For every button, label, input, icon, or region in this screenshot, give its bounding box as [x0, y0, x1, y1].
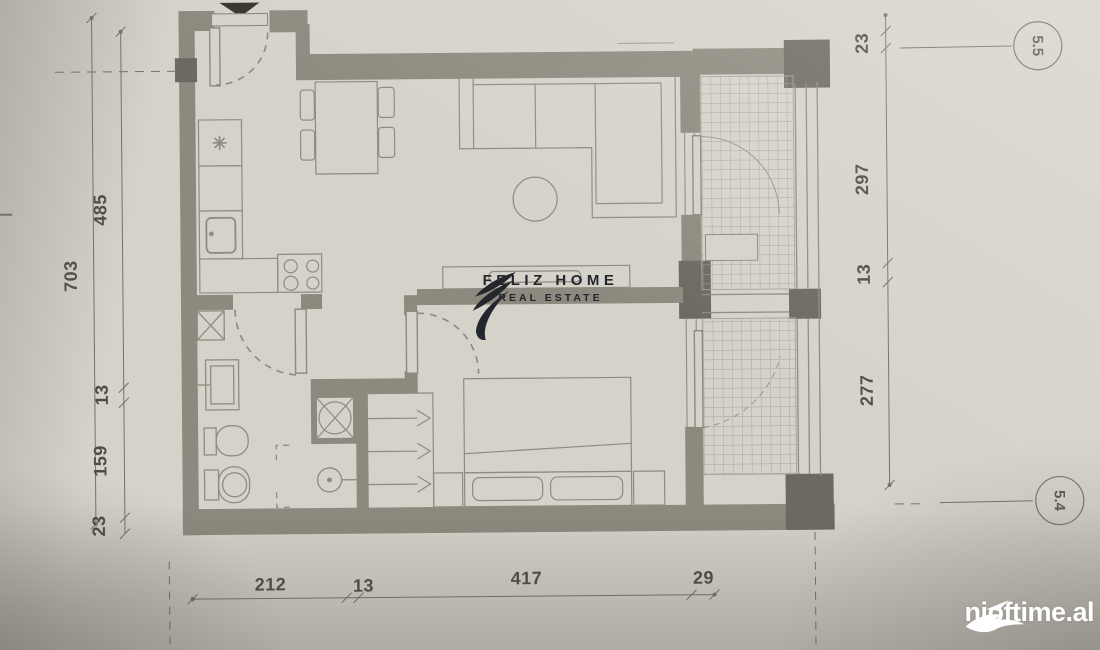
sink-tap-icon: [210, 232, 214, 236]
coffee-table: [513, 177, 557, 221]
chair: [378, 87, 394, 117]
balcony-unit: [705, 234, 757, 260]
pillow: [551, 476, 623, 500]
dimension-lines: [0, 5, 1034, 650]
dim-right-13: 13: [854, 264, 874, 285]
blanket-fold: [464, 443, 631, 453]
clothes-rail-arrow-icon: [418, 476, 431, 492]
dim-left-total: 703: [61, 260, 81, 292]
toilet-icon: [204, 426, 248, 456]
nightstand: [633, 471, 664, 505]
hob-vent-icon: [213, 136, 227, 150]
dim-left-23: 23: [89, 515, 109, 536]
sofa: [459, 69, 676, 219]
balcony: [700, 76, 820, 477]
dim-bottom-417: 417: [511, 568, 543, 588]
dim-right-297: 297: [852, 163, 872, 195]
dim-bottom-13: 13: [353, 576, 374, 596]
balcony-door-leaf: [693, 136, 702, 215]
dining-set: [300, 81, 395, 174]
axis-markers: 5.5 5.4: [1014, 21, 1084, 525]
bed-mattress: [464, 377, 632, 472]
chair: [300, 90, 314, 120]
dim-left-13: 13: [92, 384, 112, 405]
scanned-floor-plan: 703 485 13 159 23 23 297 13 277 212 13 4…: [0, 0, 1100, 650]
nightstand: [434, 473, 463, 507]
axis-label-5-5: 5.5: [1029, 35, 1046, 56]
chair: [301, 130, 315, 160]
wardrobe: [361, 393, 434, 516]
dim-right-23: 23: [852, 33, 872, 54]
entry-door-sill: [211, 13, 267, 25]
balcony-tile-hatch: [702, 318, 796, 475]
bird-icon: [964, 597, 1026, 639]
dim-left-159: 159: [90, 445, 110, 477]
entry-door-leaf: [210, 28, 221, 86]
dim-left-485: 485: [90, 194, 110, 226]
bedroom-door-leaf: [406, 311, 418, 373]
shower-icon: [276, 445, 359, 508]
living-room-furniture: [441, 69, 677, 289]
clothes-rail-arrow-icon: [417, 443, 430, 459]
floor-plan-drawing: 703 485 13 159 23 23 297 13 277 212 13 4…: [0, 0, 1100, 650]
dining-table: [315, 82, 378, 175]
kitchen-fixtures: [198, 119, 322, 293]
bedroom-balcony-door-leaf: [694, 331, 703, 428]
axis-label-5-4: 5.4: [1051, 490, 1068, 512]
pillow: [473, 477, 543, 501]
stove-icon: [278, 254, 322, 292]
kitchen-counter: [200, 258, 278, 293]
dim-bottom-29: 29: [693, 568, 714, 588]
bathroom-door-leaf: [295, 309, 307, 373]
entry-door-swing: [216, 32, 268, 84]
njoftime-watermark: njoftime.al: [964, 597, 1094, 628]
dim-bottom-212: 212: [255, 574, 287, 594]
clothes-rail-arrow-icon: [417, 410, 430, 426]
bathroom-sink-icon: [198, 360, 239, 410]
washing-machine-icon: [197, 311, 224, 340]
dim-right-277: 277: [857, 374, 877, 406]
bedroom-furniture: [361, 377, 665, 516]
flame-icon: [463, 272, 517, 342]
bathroom-door-swing: [235, 309, 302, 376]
chair: [378, 127, 394, 157]
kitchen-cabinet: [199, 166, 242, 211]
feliz-home-logo: FELIZ HOME REAL ESTATE: [463, 272, 638, 304]
bidet-icon: [204, 467, 249, 503]
